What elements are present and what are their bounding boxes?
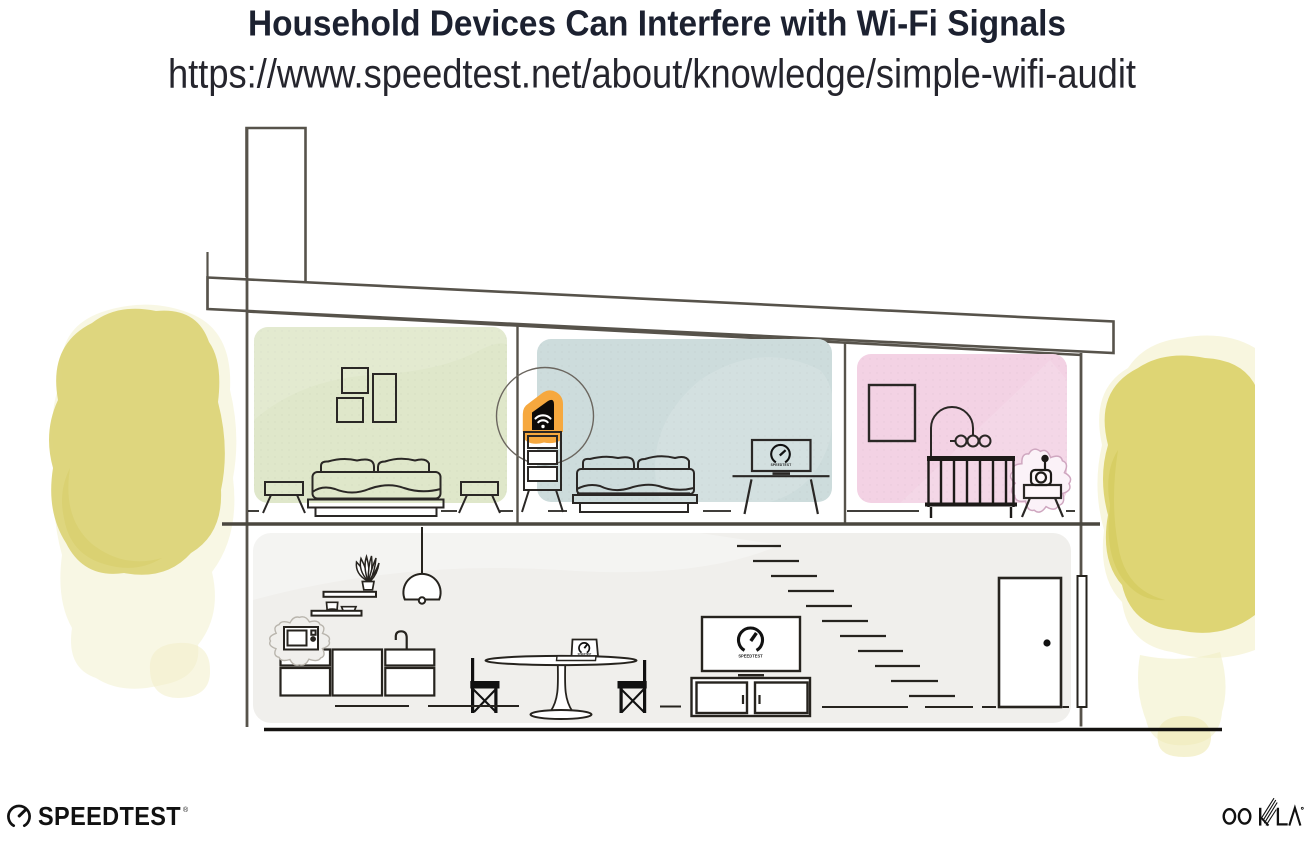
- svg-text:https://www.speedtest.net/abou: https://www.speedtest.net/about/knowledg…: [168, 51, 1136, 97]
- svg-text:Household Devices Can Interfer: Household Devices Can Interfere with Wi-…: [248, 3, 1066, 44]
- svg-text:SPEEDTEST: SPEEDTEST: [38, 803, 181, 831]
- svg-text:SPEEDTEST: SPEEDTEST: [771, 463, 792, 467]
- svg-text:SPEEDTEST: SPEEDTEST: [578, 654, 592, 656]
- svg-text:SPEEDTEST: SPEEDTEST: [738, 654, 763, 659]
- svg-text:®: ®: [183, 806, 189, 814]
